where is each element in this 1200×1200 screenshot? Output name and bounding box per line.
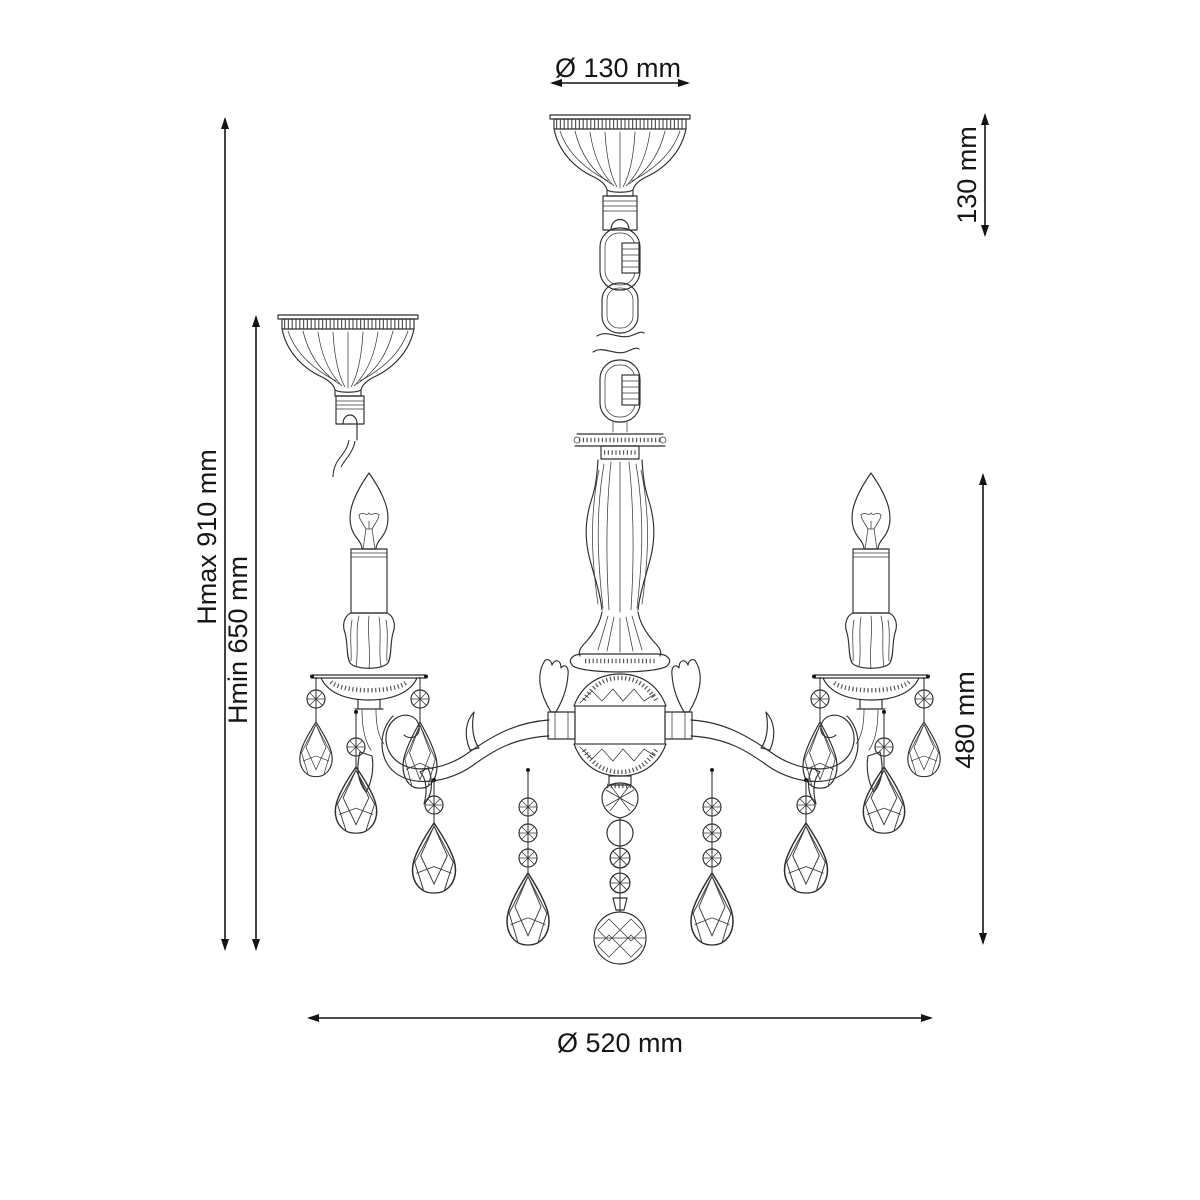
hub-finial	[602, 776, 638, 818]
chandelier-drawing: Ø 130 mm 130 mm Hmax 910 mm Hmin 650 mm …	[0, 0, 1200, 1200]
arm-assembly-right	[672, 473, 940, 945]
stem-collar	[574, 434, 666, 459]
hanging-crystals	[300, 677, 549, 945]
ceiling-canopy-short-mount	[278, 315, 418, 477]
arm-assembly-left	[300, 473, 568, 945]
dim-fixture-diameter: Ø 520 mm	[307, 1014, 933, 1058]
dim-height-min: Hmin 650 mm	[223, 315, 260, 951]
dim-height-max: Hmax 910 mm	[192, 117, 229, 951]
glass-baluster-stem	[570, 460, 669, 672]
dim-height-min-label: Hmin 650 mm	[223, 556, 253, 724]
dim-body-height: 480 mm	[950, 473, 987, 945]
dim-canopy-height-label: 130 mm	[952, 126, 982, 224]
chain-break-mark	[593, 348, 639, 353]
dim-fixture-diameter-label: Ø 520 mm	[557, 1028, 683, 1058]
arm-socket-left	[548, 712, 575, 739]
center-hub	[548, 674, 692, 818]
arm-socket-right	[665, 712, 692, 739]
dim-canopy-diameter: Ø 130 mm	[550, 53, 690, 87]
canopy-connector	[603, 196, 637, 230]
candle-bulb	[344, 473, 395, 668]
dim-height-max-label: Hmax 910 mm	[192, 449, 222, 625]
dim-canopy-height: 130 mm	[952, 113, 989, 237]
ceiling-canopy-top	[550, 115, 690, 230]
bobeche	[310, 675, 428, 710]
faceted-sphere	[594, 912, 646, 964]
diagram-canvas: Ø 130 mm 130 mm Hmax 910 mm Hmin 650 mm …	[0, 0, 1200, 1200]
scroll-arm	[358, 660, 568, 804]
central-crystal-drop	[594, 818, 646, 964]
dim-body-height-label: 480 mm	[950, 671, 980, 769]
dim-canopy-diameter-label: Ø 130 mm	[555, 53, 681, 83]
suspension-chain	[593, 228, 644, 432]
